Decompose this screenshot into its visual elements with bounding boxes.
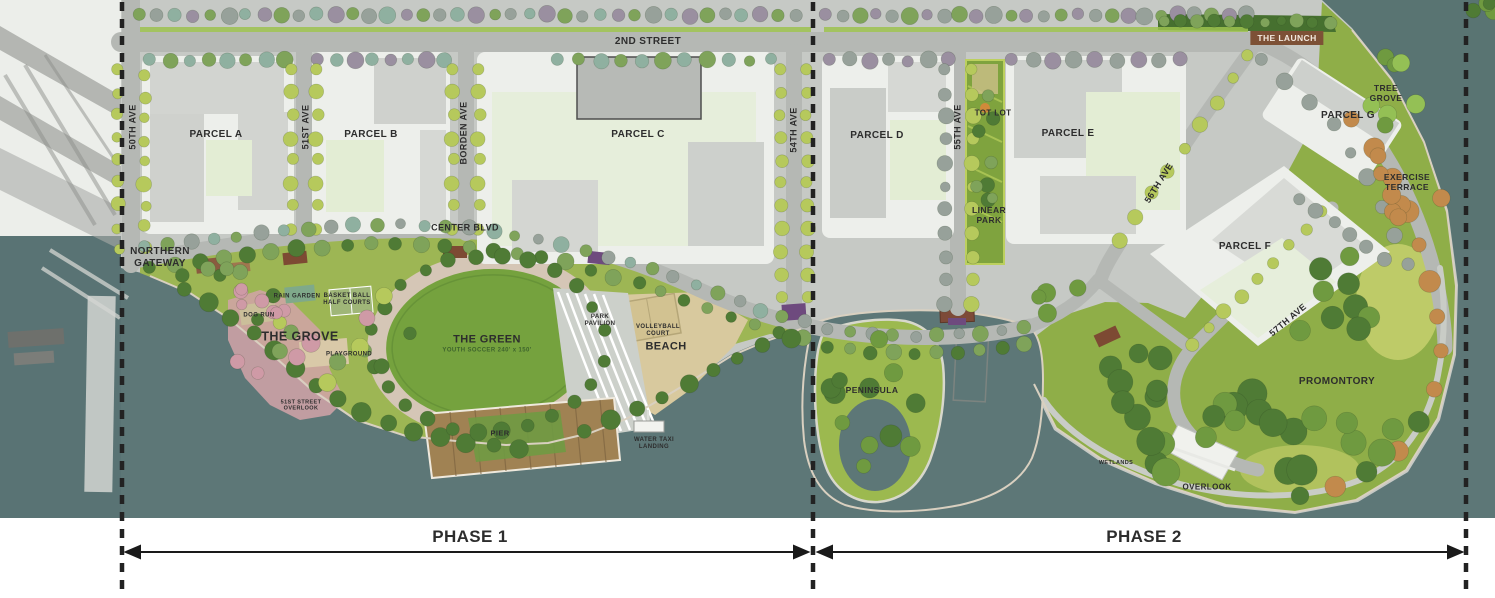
parcel-b-block [312, 52, 450, 234]
parcel-d-block [822, 56, 954, 238]
parcel-c-block [477, 52, 774, 264]
rain-garden-area [284, 284, 316, 303]
site-plan: 2ND STREET50TH AVE51ST AVEBORDEN AVE54TH… [0, 0, 1495, 598]
parcel-e-block [1006, 56, 1186, 244]
parcel-a-block [142, 56, 294, 234]
site-plan-svg [0, 0, 1495, 598]
